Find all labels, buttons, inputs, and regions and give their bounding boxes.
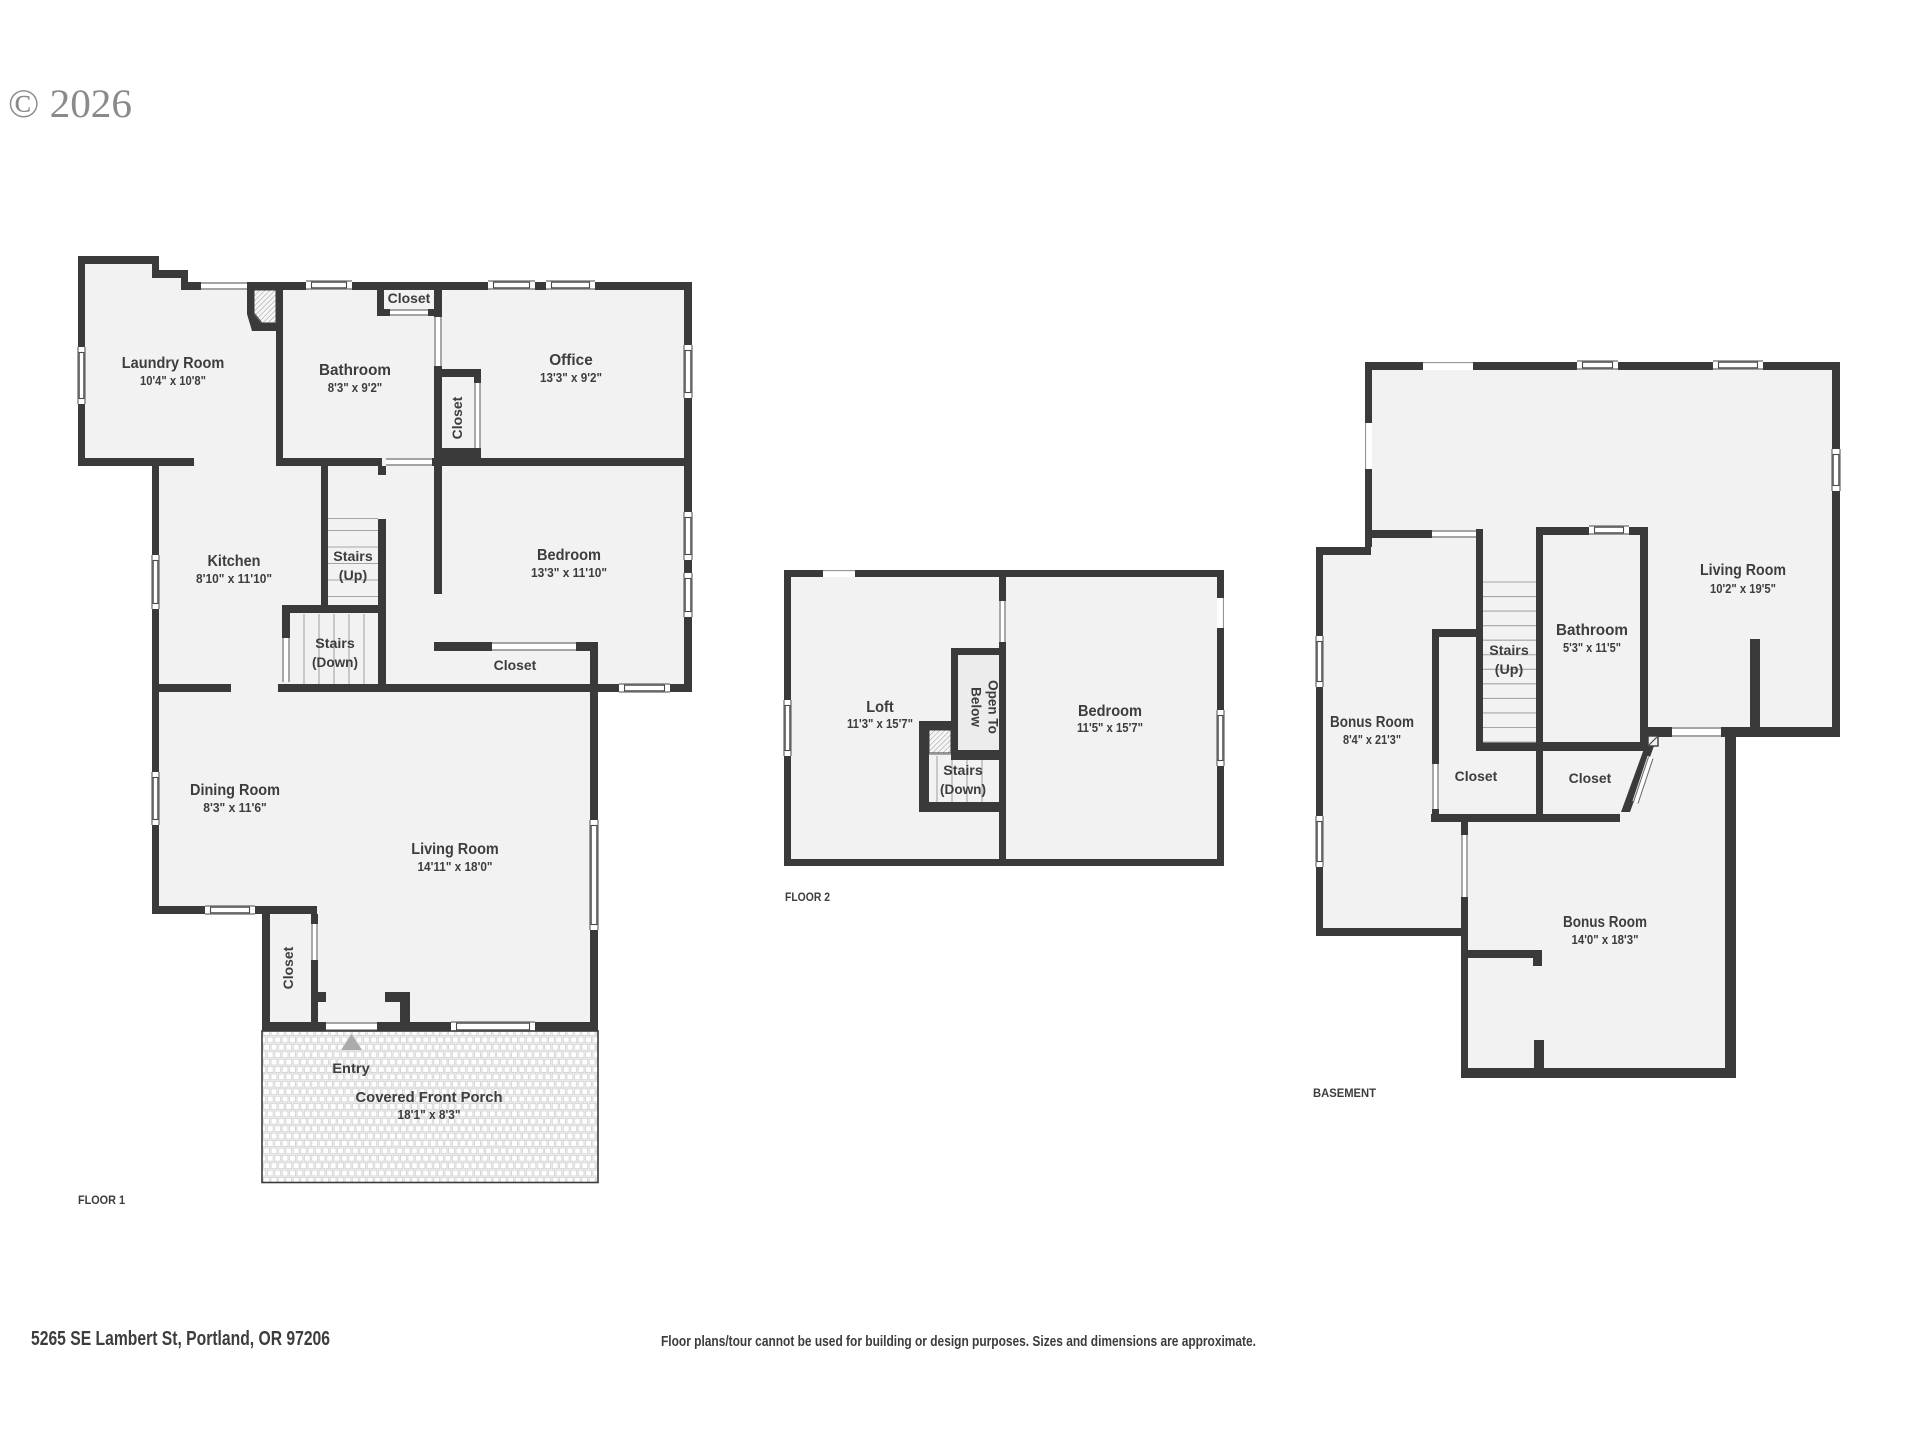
svg-text:14'0" x 18'3": 14'0" x 18'3" bbox=[1572, 933, 1639, 947]
svg-text:Bonus Room: Bonus Room bbox=[1563, 914, 1647, 931]
svg-text:Stairs: Stairs bbox=[333, 549, 373, 564]
svg-text:8'10" x 11'10": 8'10" x 11'10" bbox=[196, 572, 272, 586]
svg-text:Entry: Entry bbox=[332, 1061, 370, 1076]
svg-text:Office: Office bbox=[549, 352, 593, 369]
svg-text:8'3" x 11'6": 8'3" x 11'6" bbox=[203, 801, 267, 815]
svg-text:Bedroom: Bedroom bbox=[1078, 703, 1142, 720]
svg-text:BASEMENT: BASEMENT bbox=[1313, 1088, 1376, 1100]
svg-text:FLOOR 2: FLOOR 2 bbox=[785, 892, 830, 904]
svg-text:13'3" x 11'10": 13'3" x 11'10" bbox=[531, 566, 607, 580]
svg-text:Below: Below bbox=[969, 687, 984, 727]
svg-text:8'3" x 9'2": 8'3" x 9'2" bbox=[328, 381, 383, 395]
svg-text:(Down): (Down) bbox=[312, 655, 358, 670]
svg-text:(Up): (Up) bbox=[1495, 662, 1524, 677]
svg-text:Stairs: Stairs bbox=[315, 636, 355, 651]
svg-text:Closet: Closet bbox=[281, 946, 296, 989]
svg-text:Bathroom: Bathroom bbox=[319, 362, 391, 379]
svg-text:Bonus Room: Bonus Room bbox=[1330, 714, 1414, 731]
svg-text:Living Room: Living Room bbox=[1700, 562, 1786, 579]
svg-text:Dining Room: Dining Room bbox=[190, 782, 280, 799]
svg-text:11'3" x 15'7": 11'3" x 15'7" bbox=[847, 717, 913, 731]
svg-text:13'3" x 9'2": 13'3" x 9'2" bbox=[540, 371, 602, 385]
svg-text:(Up): (Up) bbox=[339, 568, 368, 583]
svg-text:11'5" x 15'7": 11'5" x 15'7" bbox=[1077, 721, 1143, 735]
svg-text:18'1" x 8'3": 18'1" x 8'3" bbox=[398, 1108, 461, 1122]
svg-text:Living Room: Living Room bbox=[411, 841, 499, 858]
svg-text:Closet: Closet bbox=[388, 291, 431, 306]
svg-text:Closet: Closet bbox=[1455, 769, 1498, 784]
svg-text:Bathroom: Bathroom bbox=[1556, 622, 1628, 639]
svg-text:10'2" x 19'5": 10'2" x 19'5" bbox=[1710, 582, 1776, 596]
svg-text:Stairs: Stairs bbox=[943, 763, 983, 778]
svg-text:Stairs: Stairs bbox=[1489, 643, 1529, 658]
svg-text:© 2026: © 2026 bbox=[8, 81, 132, 126]
svg-text:FLOOR 1: FLOOR 1 bbox=[78, 1195, 126, 1207]
svg-text:14'11" x 18'0": 14'11" x 18'0" bbox=[418, 860, 493, 874]
svg-text:5'3" x 11'5": 5'3" x 11'5" bbox=[1563, 641, 1621, 655]
svg-text:Covered Front Porch: Covered Front Porch bbox=[356, 1089, 503, 1106]
svg-text:Closet: Closet bbox=[1569, 771, 1612, 786]
svg-text:(Down): (Down) bbox=[940, 782, 986, 797]
svg-text:Closet: Closet bbox=[494, 658, 537, 673]
svg-text:8'4" x 21'3": 8'4" x 21'3" bbox=[1343, 733, 1401, 747]
svg-text:Closet: Closet bbox=[450, 396, 465, 439]
svg-text:Floor plans/tour cannot be use: Floor plans/tour cannot be used for buil… bbox=[661, 1333, 1256, 1350]
svg-text:Laundry Room: Laundry Room bbox=[122, 355, 225, 372]
svg-text:Bedroom: Bedroom bbox=[537, 547, 601, 564]
svg-text:Open To: Open To bbox=[986, 680, 1001, 734]
svg-text:Loft: Loft bbox=[866, 699, 894, 716]
svg-text:Kitchen: Kitchen bbox=[208, 553, 261, 570]
svg-text:5265 SE Lambert St, Portland,: 5265 SE Lambert St, Portland, OR 97206 bbox=[31, 1328, 330, 1350]
svg-text:10'4" x 10'8": 10'4" x 10'8" bbox=[140, 374, 206, 388]
